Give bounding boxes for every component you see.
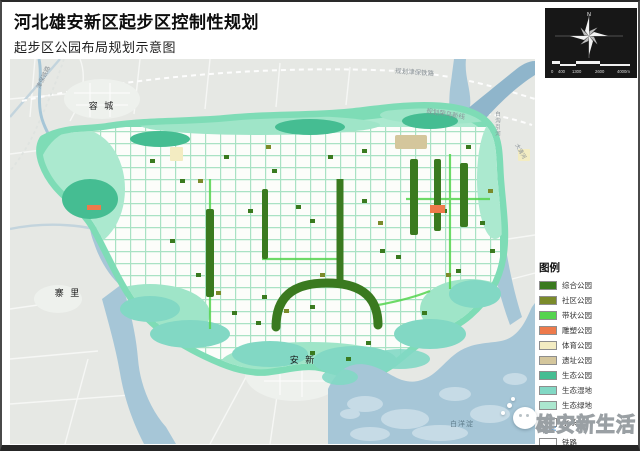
wechat-dot (501, 411, 505, 415)
label-baiyangdian: 白洋淀 (450, 419, 474, 428)
legend-label: 社区公园 (562, 295, 592, 306)
page-title: 河北雄安新区起步区控制性规划 (14, 8, 259, 33)
map-canvas[interactable]: 容 城 寨 里 安 新 白洋淀 规划津保铁路 规划荣乌新线 津保铁路 白沟引河 … (10, 59, 535, 444)
legend-swatch-tiyu (539, 341, 557, 350)
legend-item-shequ: 社区公园 (539, 295, 592, 306)
legend-label: 带状公园 (562, 310, 592, 321)
label-rongcheng: 容 城 (89, 100, 116, 111)
scale-tick-4: 4000m (617, 69, 630, 74)
scale-tick-0: 0 (551, 69, 554, 74)
label-zhaili: 寨 里 (55, 287, 82, 298)
wechat-dot (511, 397, 515, 401)
legend-swatch-daizhuang (539, 311, 557, 320)
legend-swatch-tielu (539, 438, 557, 447)
scale-tick-2: 1300 (572, 69, 582, 74)
legend-swatch-yizhi (539, 356, 557, 365)
wechat-bubble-icon (513, 407, 537, 429)
watermark-text: 雄安新生活 (536, 409, 637, 438)
legend-label: 铁路 (562, 437, 577, 448)
north-label: N (587, 12, 591, 18)
legend-label: 生态公园 (562, 370, 592, 381)
compass-panel: N 0 400 1300 2600 4000m (545, 8, 637, 78)
legend-label: 雕塑公园 (562, 325, 592, 336)
legend-item-tielu: 铁路 (539, 437, 577, 448)
legend-item-zonghe: 综合公园 (539, 280, 592, 291)
page-subtitle: 起步区公园布局规划示意图 (14, 37, 259, 56)
legend-item-yizhi: 遗址公园 (539, 355, 592, 366)
scale-tick-1: 400 (558, 69, 566, 74)
legend-item-tiyu: 体育公园 (539, 340, 592, 351)
legend-item-daizhuang: 带状公园 (539, 310, 592, 321)
map-svg: 容 城 寨 里 安 新 白洋淀 规划津保铁路 规划荣乌新线 津保铁路 白沟引河 … (10, 59, 535, 444)
legend-swatch-stsd (539, 386, 557, 395)
legend-label: 体育公园 (562, 340, 592, 351)
scale-bar: 0 400 1300 2600 4000m (551, 61, 630, 74)
legend-swatch-shequ (539, 296, 557, 305)
label-river-right: 白沟引河 (494, 110, 501, 137)
label-anxin: 安 新 (290, 354, 317, 365)
legend-title: 图例 (539, 260, 638, 275)
legend-item-diaosu: 雕塑公园 (539, 325, 592, 336)
title-block: 河北雄安新区起步区控制性规划 起步区公园布局规划示意图 (14, 8, 259, 56)
legend-label: 综合公园 (562, 280, 592, 291)
legend-label: 生态湿地 (562, 385, 592, 396)
legend-swatch-diaosu (539, 326, 557, 335)
wechat-dot (507, 403, 512, 408)
scale-tick-3: 2600 (595, 69, 605, 74)
legend-panel: 图例 综合公园社区公园带状公园雕塑公园体育公园遗址公园生态公园生态湿地生态绿地水… (539, 260, 638, 275)
compass-svg: N 0 400 1300 2600 4000m (545, 8, 637, 78)
legend-swatch-zonghe (539, 281, 557, 290)
page: 河北雄安新区起步区控制性规划 起步区公园布局规划示意图 (0, 0, 640, 451)
legend-swatch-stgy (539, 371, 557, 380)
legend-item-stsd: 生态湿地 (539, 385, 592, 396)
legend-label: 遗址公园 (562, 355, 592, 366)
compass-rose-icon: N (555, 12, 623, 58)
legend-item-stgy: 生态公园 (539, 370, 592, 381)
